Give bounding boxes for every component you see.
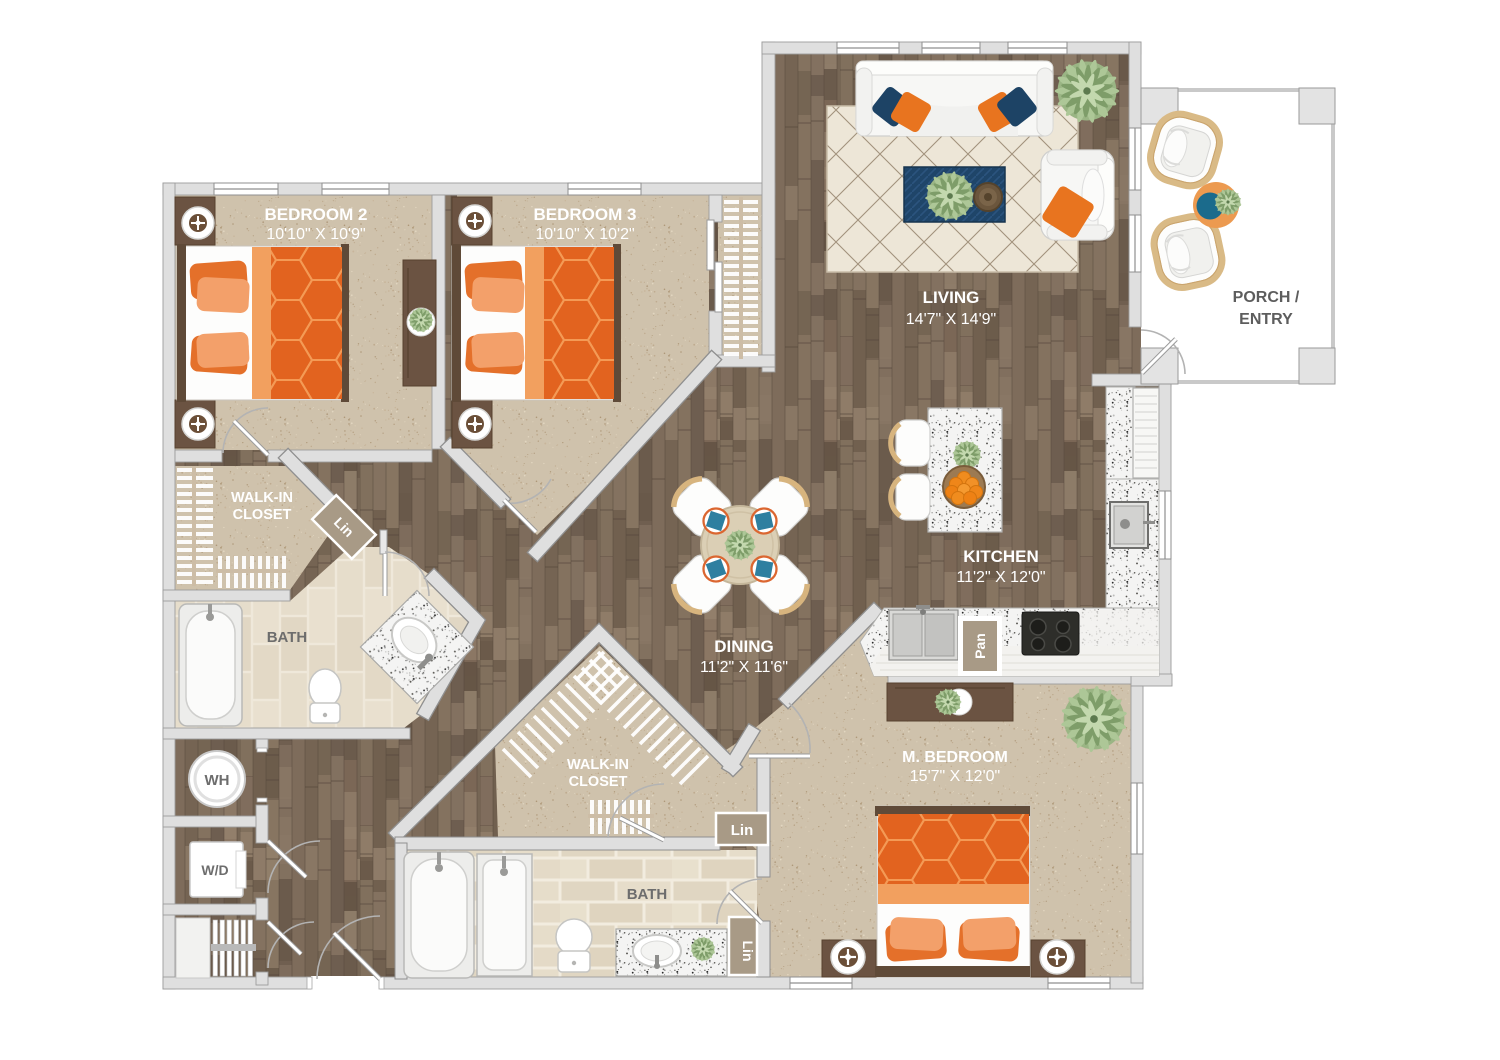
svg-text:Lin: Lin	[740, 941, 756, 962]
svg-text:WALK-IN: WALK-IN	[567, 757, 629, 773]
svg-text:11'2" X 12'0": 11'2" X 12'0"	[956, 569, 1045, 586]
svg-text:DINING: DINING	[714, 637, 774, 656]
svg-text:BEDROOM 2: BEDROOM 2	[265, 205, 368, 224]
svg-text:CLOSET: CLOSET	[233, 507, 292, 523]
svg-text:PORCH /: PORCH /	[1233, 289, 1300, 306]
svg-text:W/D: W/D	[201, 862, 228, 878]
svg-text:10'10" X 10'9": 10'10" X 10'9"	[266, 226, 365, 243]
svg-text:ENTRY: ENTRY	[1239, 311, 1293, 328]
svg-text:LIVING: LIVING	[923, 288, 980, 307]
svg-text:BATH: BATH	[267, 629, 308, 646]
svg-text:BEDROOM 3: BEDROOM 3	[534, 205, 637, 224]
svg-text:M. BEDROOM: M. BEDROOM	[902, 749, 1008, 766]
svg-text:11'2" X 11'6": 11'2" X 11'6"	[700, 659, 788, 676]
svg-text:Lin: Lin	[731, 822, 754, 839]
svg-text:10'10" X 10'2": 10'10" X 10'2"	[535, 226, 634, 243]
svg-text:14'7" X 14'9": 14'7" X 14'9"	[906, 311, 996, 328]
svg-text:CLOSET: CLOSET	[569, 774, 628, 790]
svg-text:15'7" X 12'0": 15'7" X 12'0"	[910, 768, 1000, 785]
svg-text:BATH: BATH	[627, 886, 668, 903]
svg-text:WH: WH	[205, 772, 230, 789]
svg-text:WALK-IN: WALK-IN	[231, 490, 293, 506]
svg-text:Pan: Pan	[972, 633, 988, 659]
svg-text:KITCHEN: KITCHEN	[963, 547, 1039, 566]
